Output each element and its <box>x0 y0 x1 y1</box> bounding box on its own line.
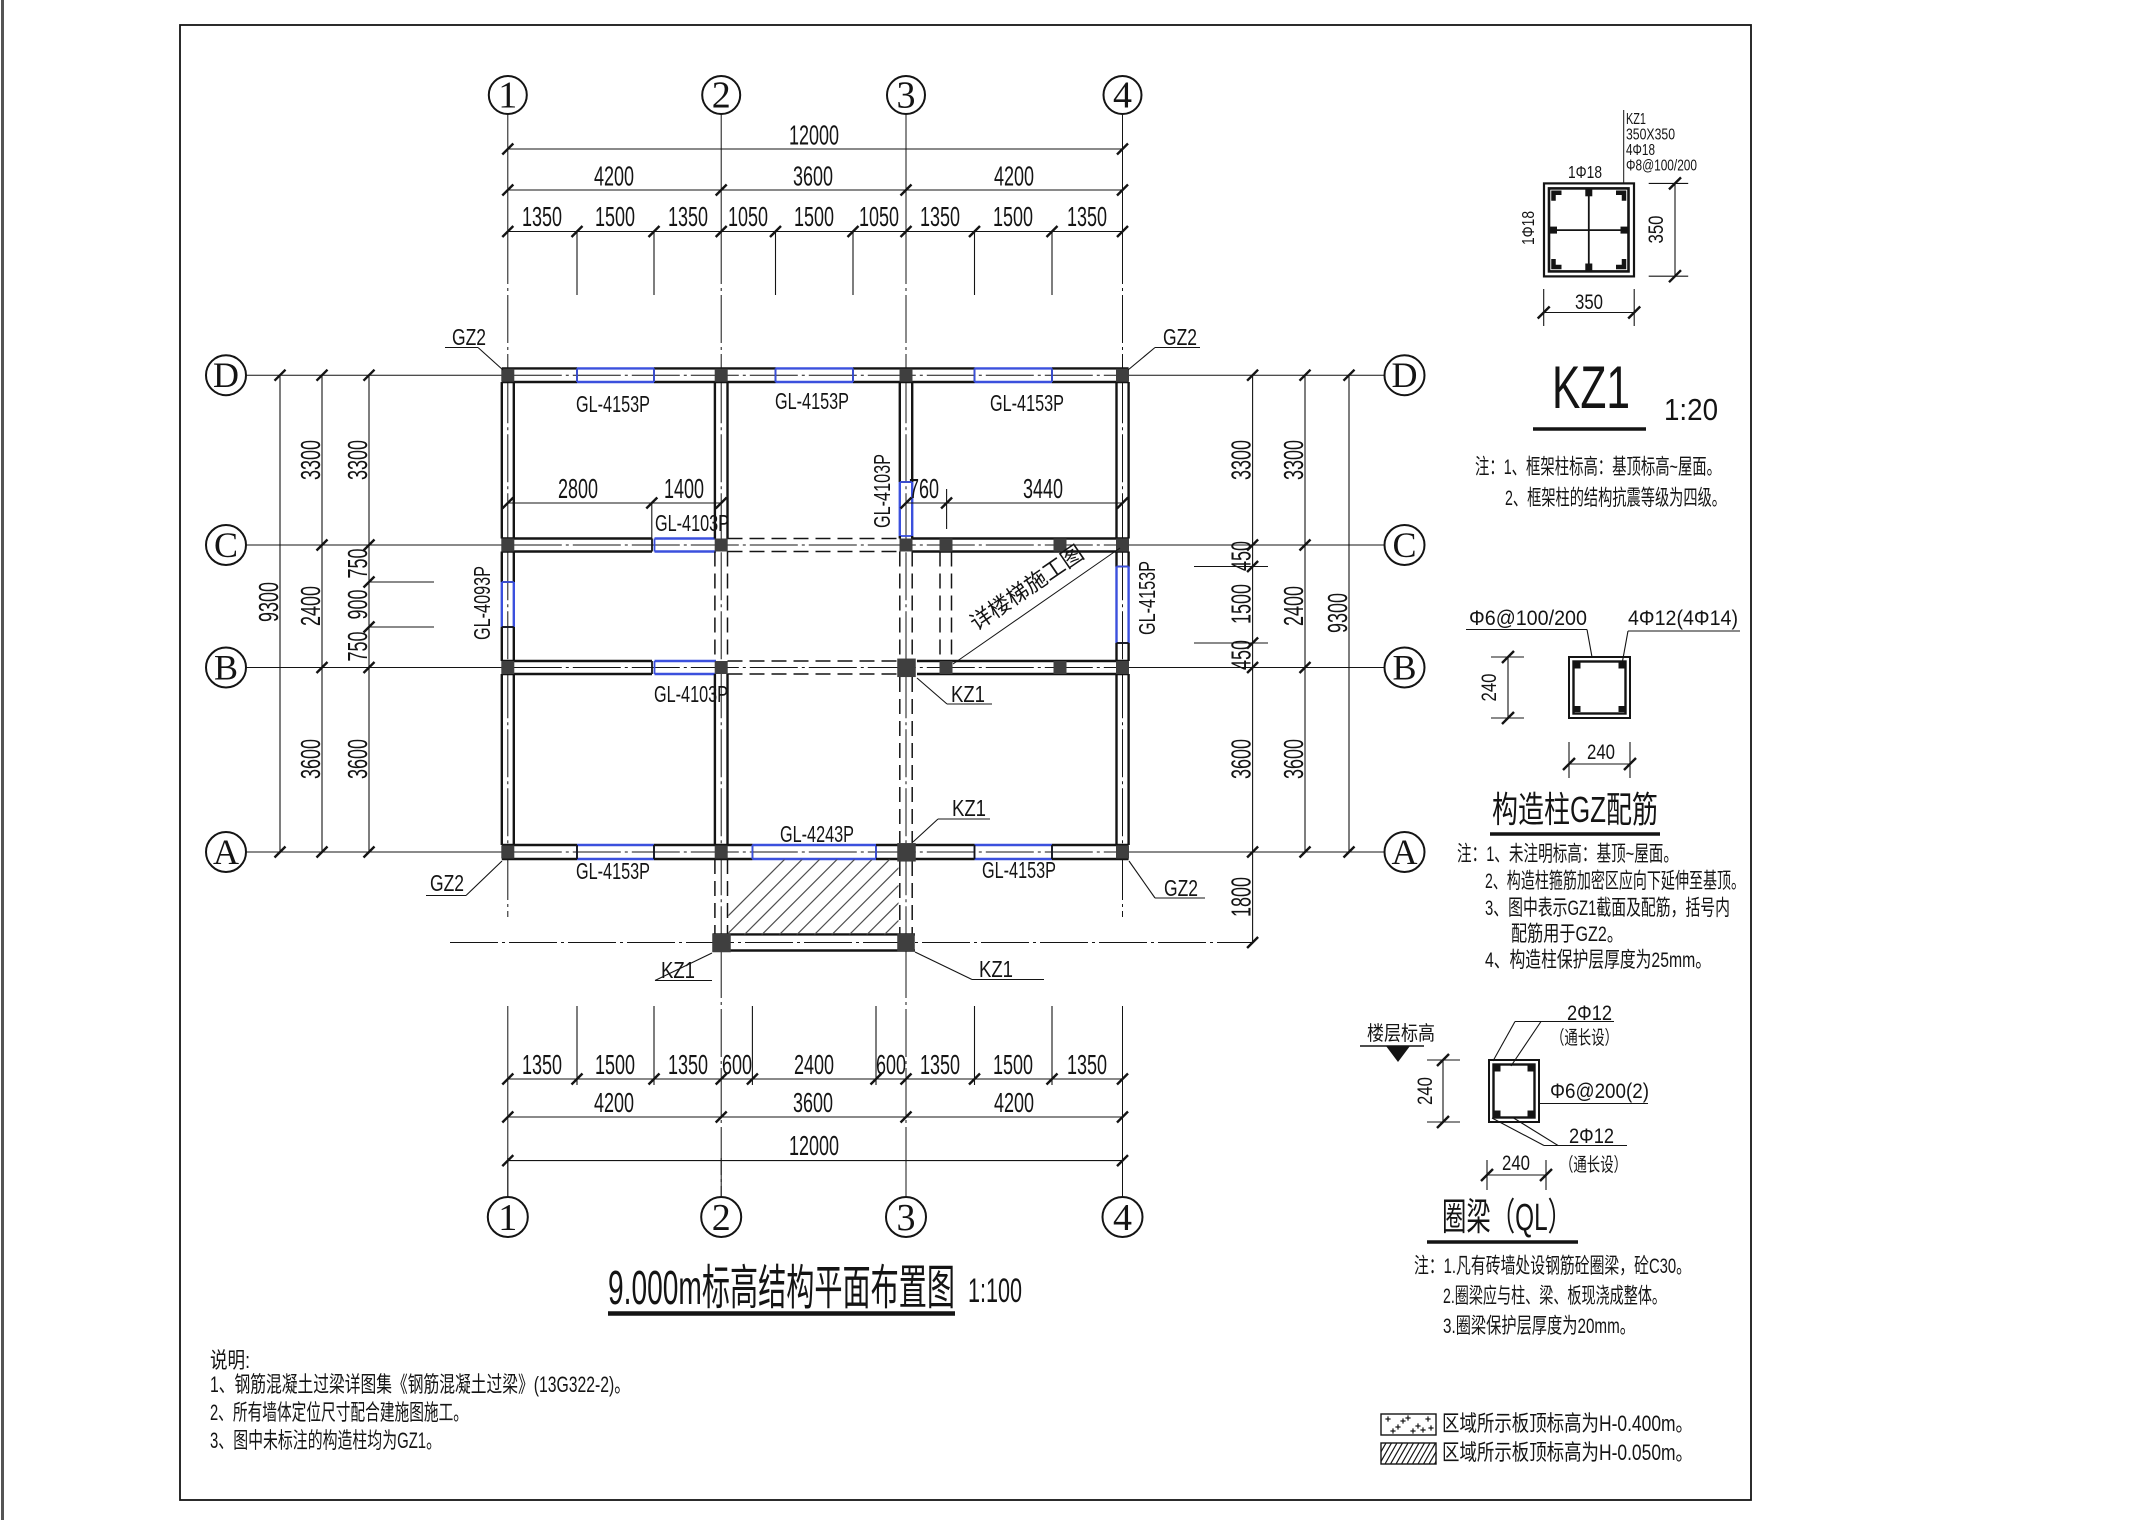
svg-text:600: 600 <box>722 1049 752 1080</box>
svg-text:2400: 2400 <box>794 1049 834 1080</box>
svg-text:GL-4243P: GL-4243P <box>780 821 854 847</box>
svg-text:3、图中表示GZ1截面及配筋，括号内: 3、图中表示GZ1截面及配筋，括号内 <box>1485 896 1730 920</box>
svg-text:说明:: 说明: <box>210 1348 250 1373</box>
svg-text:1500: 1500 <box>595 201 635 232</box>
svg-text:2400: 2400 <box>1278 586 1309 626</box>
svg-text:2: 2 <box>712 1197 731 1239</box>
svg-text:D: D <box>213 355 239 395</box>
svg-text:A: A <box>1392 832 1418 872</box>
svg-text:12000: 12000 <box>789 1130 839 1161</box>
svg-text:GL-4153P: GL-4153P <box>576 858 650 884</box>
svg-text:4: 4 <box>1113 1197 1132 1239</box>
svg-text:Φ6@100/200: Φ6@100/200 <box>1469 607 1587 630</box>
svg-text:KZ1: KZ1 <box>1626 111 1646 128</box>
svg-text:2400: 2400 <box>295 586 326 626</box>
svg-text:1350: 1350 <box>920 201 960 232</box>
svg-text:2: 2 <box>712 75 731 117</box>
svg-text:3300: 3300 <box>295 440 326 480</box>
svg-text:4: 4 <box>1113 75 1132 117</box>
svg-text:注：1.凡有砖墙处设钢筋砼圈梁，砼C30。: 注：1.凡有砖墙处设钢筋砼圈梁，砼C30。 <box>1414 1254 1691 1278</box>
svg-text:4200: 4200 <box>594 161 634 192</box>
svg-text:3300: 3300 <box>1278 440 1309 480</box>
svg-text:1500: 1500 <box>993 1049 1033 1080</box>
svg-text:1050: 1050 <box>728 201 768 232</box>
svg-text:750: 750 <box>342 632 373 662</box>
svg-text:12000: 12000 <box>789 120 839 151</box>
svg-text:注：1、框架柱标高：基顶标高~屋面。: 注：1、框架柱标高：基顶标高~屋面。 <box>1475 455 1721 479</box>
svg-text:600: 600 <box>876 1049 906 1080</box>
svg-text:1Φ18: 1Φ18 <box>1518 211 1538 245</box>
svg-text:240: 240 <box>1587 740 1615 764</box>
svg-text:1800: 1800 <box>1226 877 1257 917</box>
svg-text:3: 3 <box>897 1197 916 1239</box>
svg-text:4200: 4200 <box>594 1087 634 1118</box>
svg-text:（通长设）: （通长设） <box>1560 1154 1627 1176</box>
svg-text:3.圈梁保护层厚度为20mm。: 3.圈梁保护层厚度为20mm。 <box>1443 1314 1635 1338</box>
svg-text:760: 760 <box>909 473 939 504</box>
svg-text:GL-4103P: GL-4103P <box>655 510 729 536</box>
svg-text:3300: 3300 <box>1226 440 1257 480</box>
svg-text:9.000m标高结构平面布置图: 9.000m标高结构平面布置图 <box>608 1262 955 1315</box>
svg-text:GL-4093P: GL-4093P <box>469 566 495 640</box>
svg-text:GL-4153P: GL-4153P <box>1134 561 1160 635</box>
svg-text:GL-4153P: GL-4153P <box>982 857 1056 883</box>
svg-text:450: 450 <box>1226 640 1257 670</box>
svg-text:2、所有墙体定位尺寸配合建施图施工。: 2、所有墙体定位尺寸配合建施图施工。 <box>210 1400 468 1425</box>
svg-text:1350: 1350 <box>1067 1049 1107 1080</box>
svg-text:3600: 3600 <box>793 1087 833 1118</box>
svg-text:1050: 1050 <box>859 201 899 232</box>
svg-text:3300: 3300 <box>342 440 373 480</box>
svg-text:240: 240 <box>1477 673 1501 701</box>
svg-text:Φ6@200(2): Φ6@200(2) <box>1550 1080 1649 1103</box>
svg-text:2800: 2800 <box>558 473 598 504</box>
svg-text:350X350: 350X350 <box>1626 127 1675 144</box>
svg-text:注：1、未注明标高：基顶~屋面。: 注：1、未注明标高：基顶~屋面。 <box>1457 842 1678 866</box>
svg-text:4Φ12(4Φ14): 4Φ12(4Φ14) <box>1628 607 1738 630</box>
svg-text:240: 240 <box>1502 1151 1530 1175</box>
svg-text:GL-4153P: GL-4153P <box>990 390 1064 416</box>
svg-text:1:100: 1:100 <box>968 1272 1022 1310</box>
svg-text:GL-4103P: GL-4103P <box>869 454 895 528</box>
svg-text:（通长设）: （通长设） <box>1551 1027 1618 1049</box>
svg-text:3600: 3600 <box>295 739 326 779</box>
svg-text:Φ8@100/200: Φ8@100/200 <box>1626 158 1697 175</box>
svg-text:构造柱GZ配筋: 构造柱GZ配筋 <box>1492 789 1658 830</box>
svg-text:9300: 9300 <box>253 582 284 622</box>
svg-text:A: A <box>213 832 239 872</box>
svg-text:1Φ18: 1Φ18 <box>1568 162 1602 182</box>
svg-text:1350: 1350 <box>668 1049 708 1080</box>
svg-text:240: 240 <box>1413 1077 1437 1105</box>
svg-text:1400: 1400 <box>664 473 704 504</box>
svg-text:2、构造柱箍筋加密区应向下延伸至基顶。: 2、构造柱箍筋加密区应向下延伸至基顶。 <box>1485 869 1745 893</box>
svg-text:900: 900 <box>342 590 373 620</box>
svg-text:1: 1 <box>498 1197 517 1239</box>
svg-text:3600: 3600 <box>793 161 833 192</box>
svg-text:3: 3 <box>897 75 916 117</box>
svg-text:4200: 4200 <box>994 1087 1034 1118</box>
svg-text:1350: 1350 <box>1067 201 1107 232</box>
svg-text:D: D <box>1392 355 1418 395</box>
svg-text:区域所示板顶标高为H-0.050m。: 区域所示板顶标高为H-0.050m。 <box>1442 1440 1693 1465</box>
svg-text:1:20: 1:20 <box>1664 392 1718 427</box>
svg-text:GZ2: GZ2 <box>1163 324 1197 350</box>
svg-text:3440: 3440 <box>1023 473 1063 504</box>
svg-text:圈梁（QL）: 圈梁（QL） <box>1442 1197 1572 1239</box>
svg-text:区域所示板顶标高为H-0.400m。: 区域所示板顶标高为H-0.400m。 <box>1442 1411 1693 1436</box>
svg-text:1350: 1350 <box>522 1049 562 1080</box>
svg-text:KZ1: KZ1 <box>951 681 985 707</box>
svg-text:1500: 1500 <box>993 201 1033 232</box>
svg-text:2、框架柱的结构抗震等级为四级。: 2、框架柱的结构抗震等级为四级。 <box>1505 486 1726 510</box>
svg-text:3、图中未标注的构造柱均为GZ1。: 3、图中未标注的构造柱均为GZ1。 <box>210 1428 441 1453</box>
svg-text:GZ2: GZ2 <box>452 324 486 350</box>
svg-text:GZ2: GZ2 <box>430 870 464 896</box>
svg-text:1500: 1500 <box>595 1049 635 1080</box>
svg-text:GL-4103P: GL-4103P <box>654 681 728 707</box>
svg-text:2Φ12: 2Φ12 <box>1569 1125 1614 1148</box>
svg-text:配筋用于GZ2。: 配筋用于GZ2。 <box>1511 922 1623 946</box>
svg-text:3600: 3600 <box>342 739 373 779</box>
svg-text:2.圈梁应与柱、梁、板现浇成整体。: 2.圈梁应与柱、梁、板现浇成整体。 <box>1443 1284 1666 1308</box>
svg-text:4200: 4200 <box>994 161 1034 192</box>
svg-text:C: C <box>214 525 238 565</box>
svg-text:4Φ18: 4Φ18 <box>1626 142 1655 159</box>
svg-text:1500: 1500 <box>794 201 834 232</box>
svg-text:KZ1: KZ1 <box>1552 354 1630 421</box>
svg-text:1350: 1350 <box>920 1049 960 1080</box>
svg-text:楼层标高: 楼层标高 <box>1367 1022 1435 1045</box>
svg-text:GZ2: GZ2 <box>1164 875 1198 901</box>
svg-text:350: 350 <box>1575 290 1603 314</box>
svg-text:B: B <box>214 648 238 688</box>
svg-text:GL-4153P: GL-4153P <box>775 388 849 414</box>
svg-text:C: C <box>1392 525 1416 565</box>
svg-text:1350: 1350 <box>668 201 708 232</box>
svg-text:3600: 3600 <box>1278 739 1309 779</box>
svg-text:750: 750 <box>342 549 373 579</box>
svg-text:1500: 1500 <box>1226 584 1257 624</box>
svg-text:3600: 3600 <box>1226 739 1257 779</box>
svg-text:GL-4153P: GL-4153P <box>576 391 650 417</box>
svg-text:KZ1: KZ1 <box>979 956 1013 982</box>
svg-text:1350: 1350 <box>522 201 562 232</box>
svg-text:1、钢筋混凝土过梁详图集《钢筋混凝土过梁》(13G322-2: 1、钢筋混凝土过梁详图集《钢筋混凝土过梁》(13G322-2)。 <box>210 1372 630 1397</box>
svg-text:KZ1: KZ1 <box>952 795 986 821</box>
svg-text:1: 1 <box>498 75 517 117</box>
svg-text:350: 350 <box>1644 215 1668 243</box>
svg-text:9300: 9300 <box>1322 593 1353 633</box>
svg-text:B: B <box>1392 648 1416 688</box>
svg-text:4、构造柱保护层厚度为25mm。: 4、构造柱保护层厚度为25mm。 <box>1485 948 1711 972</box>
